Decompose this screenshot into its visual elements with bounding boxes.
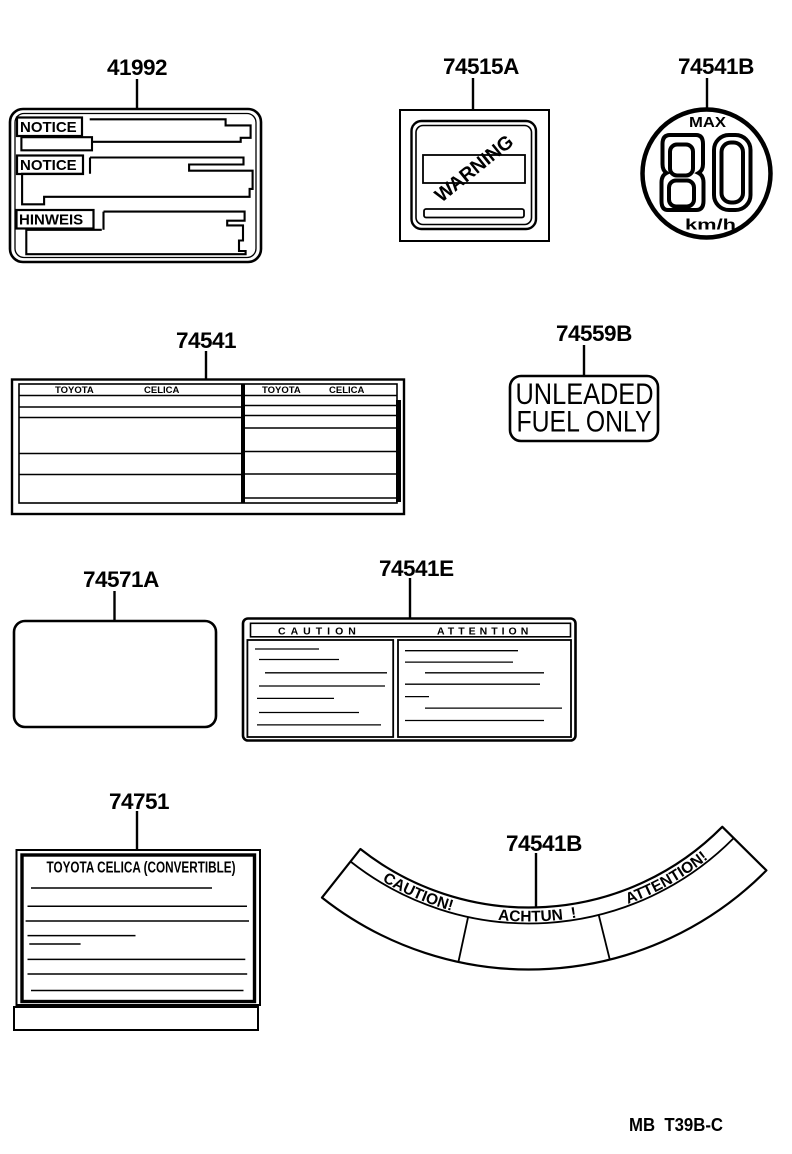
svg-text:74559B: 74559B xyxy=(556,321,632,346)
svg-text:74571A: 74571A xyxy=(83,567,159,592)
svg-text:CAUTION: CAUTION xyxy=(278,625,361,637)
svg-text:MB T39B-C: MB T39B-C xyxy=(629,1115,723,1135)
svg-text:TOYOTA: TOYOTA xyxy=(262,385,301,396)
svg-text:74751: 74751 xyxy=(109,789,169,814)
svg-text:74541E: 74541E xyxy=(379,556,454,581)
svg-text:km/h: km/h xyxy=(685,217,736,234)
svg-text:HINWEIS: HINWEIS xyxy=(19,212,83,229)
svg-text:74541: 74541 xyxy=(176,328,236,353)
svg-text:CELICA: CELICA xyxy=(329,385,365,396)
svg-text:CELICA: CELICA xyxy=(144,385,180,396)
svg-text:NOTICE: NOTICE xyxy=(20,157,77,174)
svg-text:74515A: 74515A xyxy=(443,54,519,79)
svg-text:41992: 41992 xyxy=(107,55,167,80)
svg-text:74541B: 74541B xyxy=(506,831,582,856)
svg-text:ATTENTION: ATTENTION xyxy=(437,625,532,637)
svg-text:74541B: 74541B xyxy=(678,54,754,79)
svg-text:TOYOTA CELICA (CONVERTIBLE): TOYOTA CELICA (CONVERTIBLE) xyxy=(47,860,236,877)
svg-text:FUEL ONLY: FUEL ONLY xyxy=(517,406,652,439)
svg-text:MAX: MAX xyxy=(689,115,726,131)
svg-text:TOYOTA: TOYOTA xyxy=(55,385,94,396)
svg-text:NOTICE: NOTICE xyxy=(20,119,77,136)
